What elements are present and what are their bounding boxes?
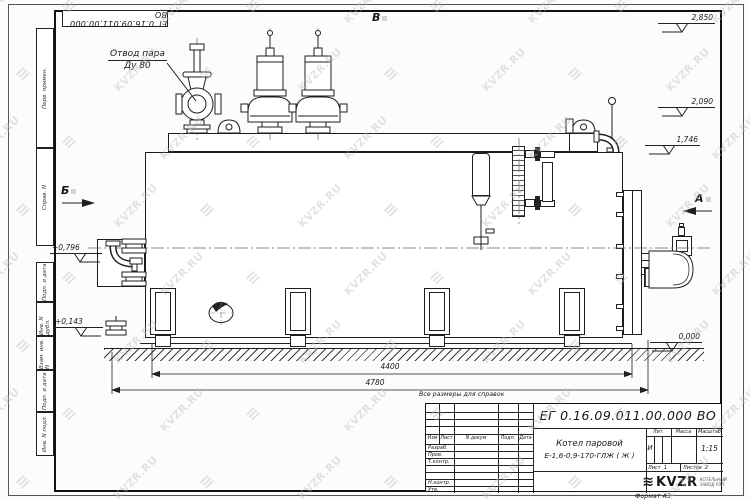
elevation-mark-0796: +0,796: [50, 243, 102, 254]
callout-steam-outlet: Отвод пара Ду 80: [108, 49, 167, 71]
view-arrow-a: [683, 207, 712, 215]
tb-lit-value: И: [646, 444, 654, 452]
tb-sheets-label: Листов 2: [683, 465, 708, 471]
company-tagline-line2: ЗАВОД РЭП: [700, 482, 727, 487]
elevation-value: +0,143: [53, 317, 103, 327]
tb-line: [662, 436, 663, 463]
tb-col-izm: Изм: [426, 436, 439, 441]
tb-product-name: Котел паровой Е-1,6-0,9-170-ГЛЖ ( Ж ): [533, 428, 646, 471]
tb-sheet-num: 1: [664, 465, 667, 471]
tb-doc-number: ЕГ 0.16.09.011.00.000 ВО: [533, 408, 723, 423]
callout-line2: Ду 80: [108, 61, 167, 71]
elevation-check-icon: [662, 107, 692, 118]
elevation-mark-0000: 0,000: [650, 332, 702, 343]
view-mark-box: [706, 197, 711, 202]
centerlines: [88, 28, 712, 248]
format-note: Формат А3: [635, 493, 671, 500]
left-fitting: [130, 258, 142, 264]
manhole: [209, 301, 233, 325]
elevation-check-icon: [652, 342, 682, 353]
tb-scale-label: Масштаб: [696, 430, 723, 435]
elevation-value: 0,000: [650, 332, 702, 342]
burner-housing: [649, 251, 693, 288]
view-letter: В: [372, 11, 380, 24]
tb-sheets-word: Листов: [683, 465, 702, 471]
dimension-text-4400: 4400: [360, 362, 420, 371]
kvzr-logo-text: KVZR: [656, 475, 698, 490]
elevation-value: +0,796: [50, 243, 102, 253]
tb-row-tkontr: Т.контр.: [428, 459, 450, 465]
elevation-check-icon: [649, 145, 679, 156]
elevation-check-icon: [71, 327, 101, 338]
tb-sheet-word: Лист: [648, 465, 661, 471]
elevation-mark-1746: 1,746: [645, 135, 700, 146]
drum-elbow-pipe: [594, 131, 616, 152]
level-probe: [566, 119, 573, 152]
tb-col-data: Дата: [518, 436, 533, 441]
elevation-check-icon: [70, 253, 100, 264]
elevation-mark-2090: 2,090: [658, 97, 715, 108]
tb-line: [426, 412, 533, 413]
tb-col-podp: Подп.: [498, 436, 518, 441]
tb-line: [426, 486, 533, 487]
tb-lit-label: Лит.: [646, 430, 671, 435]
company-logo-cell: ≋ KVZR КОТЕЛЬНЫЙ ЗАВОД РЭП: [646, 471, 723, 493]
tb-line: [646, 436, 723, 437]
view-mark-box: [71, 189, 76, 194]
view-label-a: А: [695, 192, 711, 205]
callout-line1: Отвод пара: [108, 49, 167, 61]
tb-row-razrab: Разраб.: [428, 445, 448, 451]
tb-line: [654, 436, 655, 463]
company-tagline: КОТЕЛЬНЫЙ ЗАВОД РЭП: [700, 477, 727, 488]
tb-mass-label: Масса: [671, 430, 696, 435]
dimension-text-4780: 4780: [345, 378, 405, 387]
tb-col-ndokum: N докум: [454, 436, 498, 441]
kvzr-logo-icon: ≋: [642, 475, 654, 489]
elevation-mark-2850: 2,850: [658, 13, 715, 24]
tb-scale-value: 1:15: [696, 444, 723, 453]
view-arrow-b: [62, 199, 95, 207]
tb-row-prov: Пров.: [428, 452, 443, 458]
tb-line: [426, 434, 533, 435]
elevation-value: 2,090: [658, 97, 715, 107]
view-letter: А: [695, 192, 704, 205]
tb-line: [426, 465, 533, 466]
safety-valve-2: [289, 31, 347, 134]
tb-line: [680, 463, 681, 471]
view-letter: Б: [61, 184, 69, 197]
tb-col-list: Лист: [439, 436, 454, 441]
elevation-mark-0143: +0,143: [53, 317, 103, 328]
view-label-v: В: [372, 11, 387, 24]
tb-row-nkontr: Н.контр.: [428, 480, 450, 486]
lifting-lug: [572, 120, 595, 133]
left-nozzle: [122, 239, 146, 253]
drain-valve: [106, 316, 126, 335]
drawing-sheet: Перв. примен. Справ. N Подп. и дата Инв.…: [0, 0, 750, 500]
reference-note: Все размеры для справок: [419, 391, 504, 398]
view-label-b: Б: [61, 184, 76, 197]
probe-valve: [472, 196, 494, 250]
tb-sheets-num: 2: [705, 465, 708, 471]
title-block: Изм Лист N докум Подп. Дата Разраб. Пров…: [425, 403, 722, 492]
left-nozzle: [122, 272, 146, 286]
dimension-line-4400: [152, 344, 632, 378]
tb-sheet-label: Лист 1: [648, 465, 667, 471]
view-mark-box: [382, 16, 387, 21]
elevation-check-icon: [662, 23, 692, 34]
tb-line: [426, 419, 533, 420]
tb-line: [426, 426, 533, 427]
tb-row-utv: Утв.: [428, 487, 439, 493]
lifting-lug: [218, 120, 240, 133]
tb-product-line2: Е-1,6-0,9-170-ГЛЖ ( Ж ): [544, 451, 634, 460]
steam-outlet-valve: [176, 44, 221, 133]
safety-valve-1: [241, 31, 299, 134]
elevation-value: 2,850: [658, 13, 715, 23]
tb-product-line1: Котел паровой: [556, 439, 623, 449]
elevation-value: 1,746: [645, 135, 700, 145]
tb-line: [426, 472, 533, 473]
